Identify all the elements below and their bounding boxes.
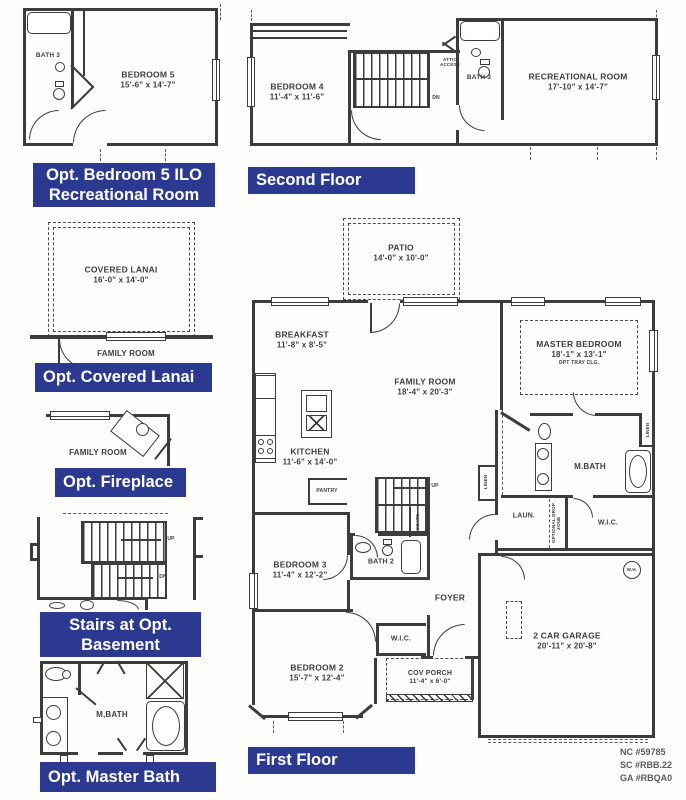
room-dims: 11'-6" x 14'-0" <box>283 457 338 467</box>
dashed-line <box>220 4 221 20</box>
wall <box>23 143 73 146</box>
wall <box>376 653 426 656</box>
wall <box>639 413 642 447</box>
toilet-tank <box>383 539 392 545</box>
room-label-family-room: FAMILY ROOM <box>97 349 155 359</box>
sink <box>55 62 65 72</box>
island-dishwasher <box>306 415 327 431</box>
wall <box>500 300 503 410</box>
room-dims: 16'-0" x 14'-0" <box>85 275 158 285</box>
wall <box>593 495 655 498</box>
wall <box>456 130 459 146</box>
wall <box>565 495 568 550</box>
door-leaf <box>75 687 96 705</box>
wall <box>348 50 351 146</box>
wall <box>495 548 655 551</box>
wall <box>478 735 655 738</box>
window <box>288 712 343 721</box>
door-arc <box>351 110 381 140</box>
closet-rod <box>253 37 347 39</box>
room-dims: 17'-10" x 14'-7" <box>529 82 628 92</box>
refrigerator <box>255 375 276 399</box>
garage-door-dashed <box>488 739 648 740</box>
dashed-line <box>597 147 598 160</box>
plan-stairs-opt-basement: UP DN <box>25 505 210 610</box>
toilet-bowl <box>62 670 71 679</box>
dashed-line <box>251 10 252 21</box>
wall <box>250 143 658 146</box>
wall <box>355 704 373 720</box>
wall <box>248 704 266 720</box>
room-name: BEDROOM 4 <box>270 81 324 92</box>
entry-chevron <box>136 738 146 751</box>
plan-numbers: NC #59785 SC #RBB.22 GA #RBQA0 <box>620 746 686 785</box>
stairs-up-label: UP <box>431 483 438 490</box>
room-dims: 15'-6" x 14'-7" <box>120 80 175 90</box>
window <box>649 330 658 372</box>
wall <box>252 300 255 705</box>
wall <box>308 478 347 480</box>
dashed-line <box>502 410 503 495</box>
door-arc <box>469 514 495 540</box>
room-dims: 11'-4" x 6'-0" <box>408 678 452 686</box>
room-name: MASTER BEDROOM <box>536 339 621 350</box>
wall <box>250 23 350 26</box>
plan-opt-bedroom5: BATH 3 BEDROOM 5 15'-6" x 14'-7" <box>15 4 227 164</box>
badge-line2: Basement <box>81 635 160 655</box>
room-label-bath2: BATH 2 <box>368 557 394 566</box>
room-label-bedroom5: BEDROOM 5 15'-6" x 14'-7" <box>120 69 175 90</box>
door-arc <box>501 556 525 580</box>
sink <box>49 602 65 609</box>
room-dims: 11'-8" x 8'-5" <box>275 340 329 350</box>
door-arc <box>29 110 59 140</box>
room-label-foyer: FOYER <box>435 592 465 603</box>
wall <box>37 597 148 600</box>
room-name: PATIO <box>373 242 428 253</box>
garage-door-dashed <box>488 742 648 743</box>
garage-opt-outline <box>506 601 522 639</box>
dashed-line <box>63 513 168 514</box>
plan-opt-master-bath: M,BATH <box>28 655 228 760</box>
sink <box>471 48 481 57</box>
stair-rail <box>81 561 167 564</box>
stairs-upper <box>81 521 167 563</box>
bathtub <box>401 540 421 574</box>
badge-label: Opt. Covered Lanai <box>43 368 194 387</box>
badge-label: Opt. Fireplace <box>63 473 173 492</box>
badge-opt-bedroom5: Opt. Bedroom 5 ILO Recreational Room <box>33 163 215 207</box>
window <box>605 297 641 306</box>
room-name: RECREATIONAL ROOM <box>529 71 628 82</box>
room-label-family-room: FAMILY ROOM 18'-4" x 20'-3" <box>394 376 455 397</box>
wall <box>252 512 347 515</box>
wall <box>374 658 377 704</box>
dashed-line <box>343 721 344 733</box>
door-arc <box>459 105 485 131</box>
room-name: COV PORCH <box>408 669 452 678</box>
badge-opt-master-bath: Opt. Master Bath <box>40 762 216 792</box>
wall <box>500 411 530 431</box>
coats-label: COATS <box>415 514 421 530</box>
dashed-line <box>656 10 657 17</box>
drop-zone-label: OPTIONAL DROP ZONE <box>551 499 561 547</box>
window <box>652 55 660 100</box>
linen-label: LINEN <box>483 475 489 490</box>
room-label-lanai: COVERED LANAI 16'-0" x 14'-0" <box>85 264 158 285</box>
room-label-kitchen: KITCHEN 11'-6" x 14'-0" <box>283 446 338 467</box>
window <box>511 297 545 306</box>
wall <box>30 558 40 561</box>
bathtub <box>27 12 71 34</box>
wall <box>427 477 430 580</box>
room-note: OPT TRAY CLG. <box>536 360 621 367</box>
wall <box>376 623 379 656</box>
wall <box>193 555 203 558</box>
sink <box>46 705 61 720</box>
room-dims: 15'-7" x 12'-4" <box>289 673 344 683</box>
burner <box>267 448 273 454</box>
wall <box>71 8 74 108</box>
badge-opt-covered-lanai: Opt. Covered Lanai <box>35 363 212 392</box>
stairs-up-label: UP <box>167 536 174 543</box>
room-label-laundry: LAUN. <box>513 511 535 520</box>
door-arc <box>73 110 106 143</box>
room-label-wic-bed2: W.I.C. <box>391 634 411 643</box>
bathtub <box>460 21 500 41</box>
room-dims: 20'-11" x 20'-8" <box>533 641 601 651</box>
badge-label: Opt. Master Bath <box>48 768 180 787</box>
room-name: KITCHEN <box>283 446 338 457</box>
burner <box>258 448 264 454</box>
sink <box>355 542 371 553</box>
wall <box>83 8 85 76</box>
attic-access-label: ATTIC ACCESS <box>435 57 465 67</box>
plan-opt-fireplace: FAMILY ROOM <box>38 396 213 468</box>
badge-stairs-opt-basement: Stairs at Opt. Basement <box>40 612 201 657</box>
badge-line1: Stairs at Opt. <box>69 615 172 635</box>
arrow-line <box>393 487 427 489</box>
room-label-family-room: FAMILY ROOM <box>69 448 127 458</box>
room-label-bedroom3: BEDROOM 3 11'-4" x 12'-2" <box>273 559 328 580</box>
wall <box>456 18 459 105</box>
room-label-mbath: M,BATH <box>96 710 128 720</box>
dashed-line <box>273 721 274 733</box>
wall <box>495 410 498 515</box>
room-dims: 11'-4" x 11'-6" <box>270 92 324 102</box>
front-door-arc <box>433 624 465 656</box>
wall <box>193 517 203 520</box>
room-name: COVERED LANAI <box>85 264 158 275</box>
room-dims: 18'-1" x 13'-1" <box>536 350 621 360</box>
room-label-bath3: BATH 3 <box>36 52 60 60</box>
room-name: 2 CAR GARAGE <box>533 630 601 641</box>
toilet-tank <box>480 59 490 65</box>
linen-label: LINEN <box>645 423 651 438</box>
bathtub-basin <box>152 706 180 746</box>
door-arc <box>117 600 139 610</box>
wall-stub <box>33 717 42 723</box>
plan-number-ga: GA #RBQA0 <box>620 772 686 785</box>
wall <box>308 478 310 505</box>
dashed-line <box>165 149 166 161</box>
wall <box>427 615 430 658</box>
room-name: BREAKFAST <box>275 329 329 340</box>
bathtub-basin <box>629 455 647 488</box>
wall <box>193 517 196 600</box>
window <box>106 332 166 341</box>
room-label-mbath: M.BATH <box>574 462 606 472</box>
water-heater-label: W.H. <box>627 567 638 573</box>
room-name: BEDROOM 2 <box>289 662 344 673</box>
door-arc <box>370 303 400 333</box>
room-label-cov-porch: COV PORCH 11'-4" x 6'-0" <box>408 669 452 687</box>
toilet <box>538 423 551 440</box>
badge-label: Second Floor <box>256 171 361 190</box>
wall <box>185 661 188 755</box>
window <box>403 297 458 306</box>
pantry-label: PANTRY <box>316 488 337 495</box>
shower <box>146 663 184 699</box>
window <box>50 411 110 420</box>
wall <box>478 465 495 467</box>
room-label-bath3: BATH 3 <box>467 74 491 82</box>
wall <box>501 18 504 120</box>
toilet <box>53 88 65 100</box>
room-label-patio: PATIO 14'-0" x 10'-0" <box>373 242 428 263</box>
wall <box>350 577 430 580</box>
wall <box>145 597 148 610</box>
wall <box>530 413 573 416</box>
range <box>255 435 276 459</box>
room-label-breakfast: BREAKFAST 11'-8" x 8'-5" <box>275 329 329 350</box>
toilet <box>382 545 393 556</box>
stairs-dn-label: DN <box>159 574 167 581</box>
room-label-bedroom4: BEDROOM 4 11'-4" x 11'-6" <box>270 81 324 102</box>
wall <box>639 445 655 447</box>
arrow-line <box>121 539 161 541</box>
badge-line1: Opt. Bedroom 5 ILO <box>46 165 202 185</box>
burner <box>258 439 264 445</box>
wall <box>23 8 218 11</box>
badge-second-floor: Second Floor <box>248 167 415 194</box>
room-dims: 14'-0" x 10'-0" <box>373 253 428 263</box>
room-label-rec-room: RECREATIONAL ROOM 17'-10" x 14'-7" <box>529 71 628 92</box>
plan-opt-covered-lanai: COVERED LANAI 16'-0" x 14'-0" FAMILY ROO… <box>28 213 223 363</box>
wall <box>378 533 427 536</box>
window <box>249 573 258 609</box>
wall <box>98 752 123 755</box>
room-label-bedroom2: BEDROOM 2 15'-7" x 12'-4" <box>289 662 344 683</box>
stairs-lower <box>91 563 167 599</box>
wall <box>595 413 641 416</box>
stair-rail <box>375 504 427 506</box>
badge-opt-fireplace: Opt. Fireplace <box>55 468 186 497</box>
wall <box>252 609 353 612</box>
room-label-master-bedroom: MASTER BEDROOM 18'-1" x 13'-1" OPT TRAY … <box>536 339 621 367</box>
arrow-line <box>117 577 153 579</box>
door-arc <box>346 612 376 642</box>
toilet-tank <box>55 81 64 87</box>
floorplan-sheet: BATH 3 BEDROOM 5 15'-6" x 14'-7" Opt. Be… <box>0 0 686 800</box>
dashed-line <box>100 149 101 161</box>
room-label-garage: 2 CAR GARAGE 20'-11" x 20'-8" <box>533 630 601 651</box>
room-name: BEDROOM 5 <box>120 69 175 80</box>
wall <box>501 495 573 498</box>
stairs <box>353 52 430 108</box>
plan-number-sc: SC #RBB.22 <box>620 759 686 772</box>
window <box>271 297 329 306</box>
dashed-line <box>656 147 657 160</box>
burner <box>267 439 273 445</box>
room-name: FAMILY ROOM <box>394 376 455 387</box>
room-dims: 11'-4" x 12'-2" <box>273 570 328 580</box>
badge-label: First Floor <box>256 751 338 770</box>
sink <box>537 448 549 460</box>
door-arc <box>573 392 597 416</box>
stairs-dn-label: DN <box>432 95 440 102</box>
wall <box>478 465 480 501</box>
stair-rail <box>353 78 430 80</box>
island-sink <box>306 395 327 412</box>
wall <box>478 499 495 501</box>
wall <box>308 503 347 505</box>
wall <box>347 580 350 610</box>
toilet <box>80 600 94 610</box>
plan-second-floor: DN ATTIC ACCESS BATH 3 BEDROOM 4 11'-4" … <box>245 10 680 162</box>
wall <box>107 143 218 146</box>
wall <box>478 553 481 738</box>
porch-step <box>386 694 473 702</box>
wall <box>23 8 26 146</box>
sink <box>537 473 549 485</box>
window <box>247 57 255 107</box>
plan-first-floor: PATIO 14'-0" x 10'-0" LINEN MASTER BEDRO… <box>243 215 686 743</box>
fireplace-firebox <box>136 423 149 436</box>
badge-line2: Recreational Room <box>49 185 199 205</box>
door-arc <box>573 498 593 518</box>
wall <box>350 533 353 580</box>
entry-chevron <box>117 738 127 751</box>
room-name: BEDROOM 3 <box>273 559 328 570</box>
plan-number-nc: NC #59785 <box>620 746 686 759</box>
room-label-wic-master: W.I.C. <box>598 518 618 527</box>
badge-first-floor: First Floor <box>248 747 415 774</box>
window <box>212 59 220 101</box>
sink <box>46 731 61 746</box>
closet-rod <box>253 30 347 32</box>
wall <box>376 623 426 626</box>
dashed-line <box>530 147 531 160</box>
room-dims: 18'-4" x 20'-3" <box>394 387 455 397</box>
